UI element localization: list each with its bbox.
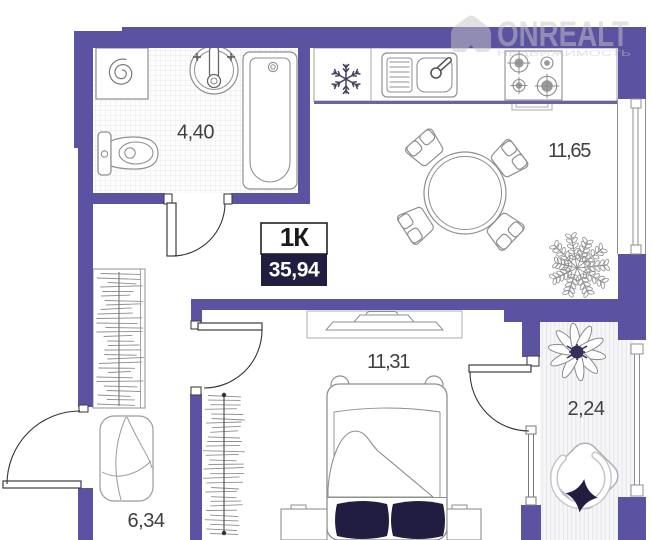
svg-text:11,31: 11,31 [367, 351, 410, 373]
svg-text:11,65: 11,65 [548, 140, 591, 162]
svg-text:35,94: 35,94 [269, 259, 320, 282]
svg-text:2,24: 2,24 [568, 398, 605, 420]
svg-text:6,34: 6,34 [128, 510, 165, 532]
svg-text:1К: 1К [280, 222, 309, 252]
svg-text:НЕДВИЖИМОСТЬ: НЕДВИЖИМОСТЬ [497, 48, 632, 58]
svg-text:4,40: 4,40 [177, 122, 214, 144]
